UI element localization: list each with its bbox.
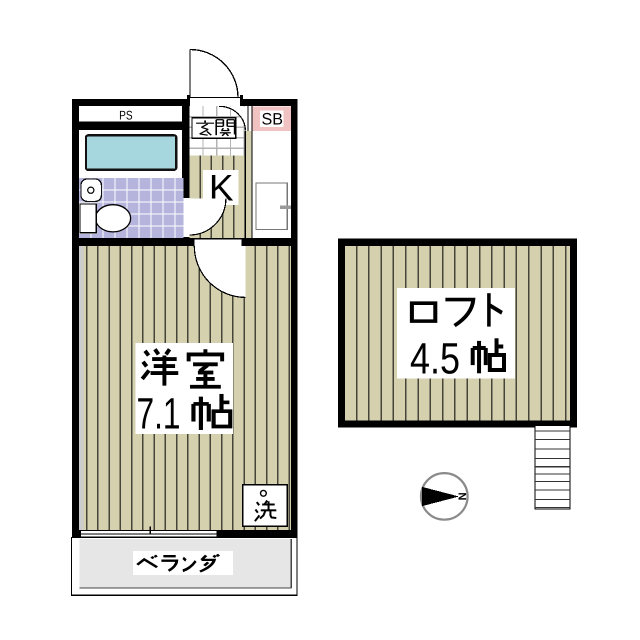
svg-text:PS: PS	[119, 108, 133, 122]
svg-text:SB: SB	[262, 110, 284, 129]
svg-text:4.5: 4.5	[410, 335, 460, 384]
svg-text:N: N	[456, 492, 468, 500]
svg-text:7.1: 7.1	[137, 390, 181, 439]
